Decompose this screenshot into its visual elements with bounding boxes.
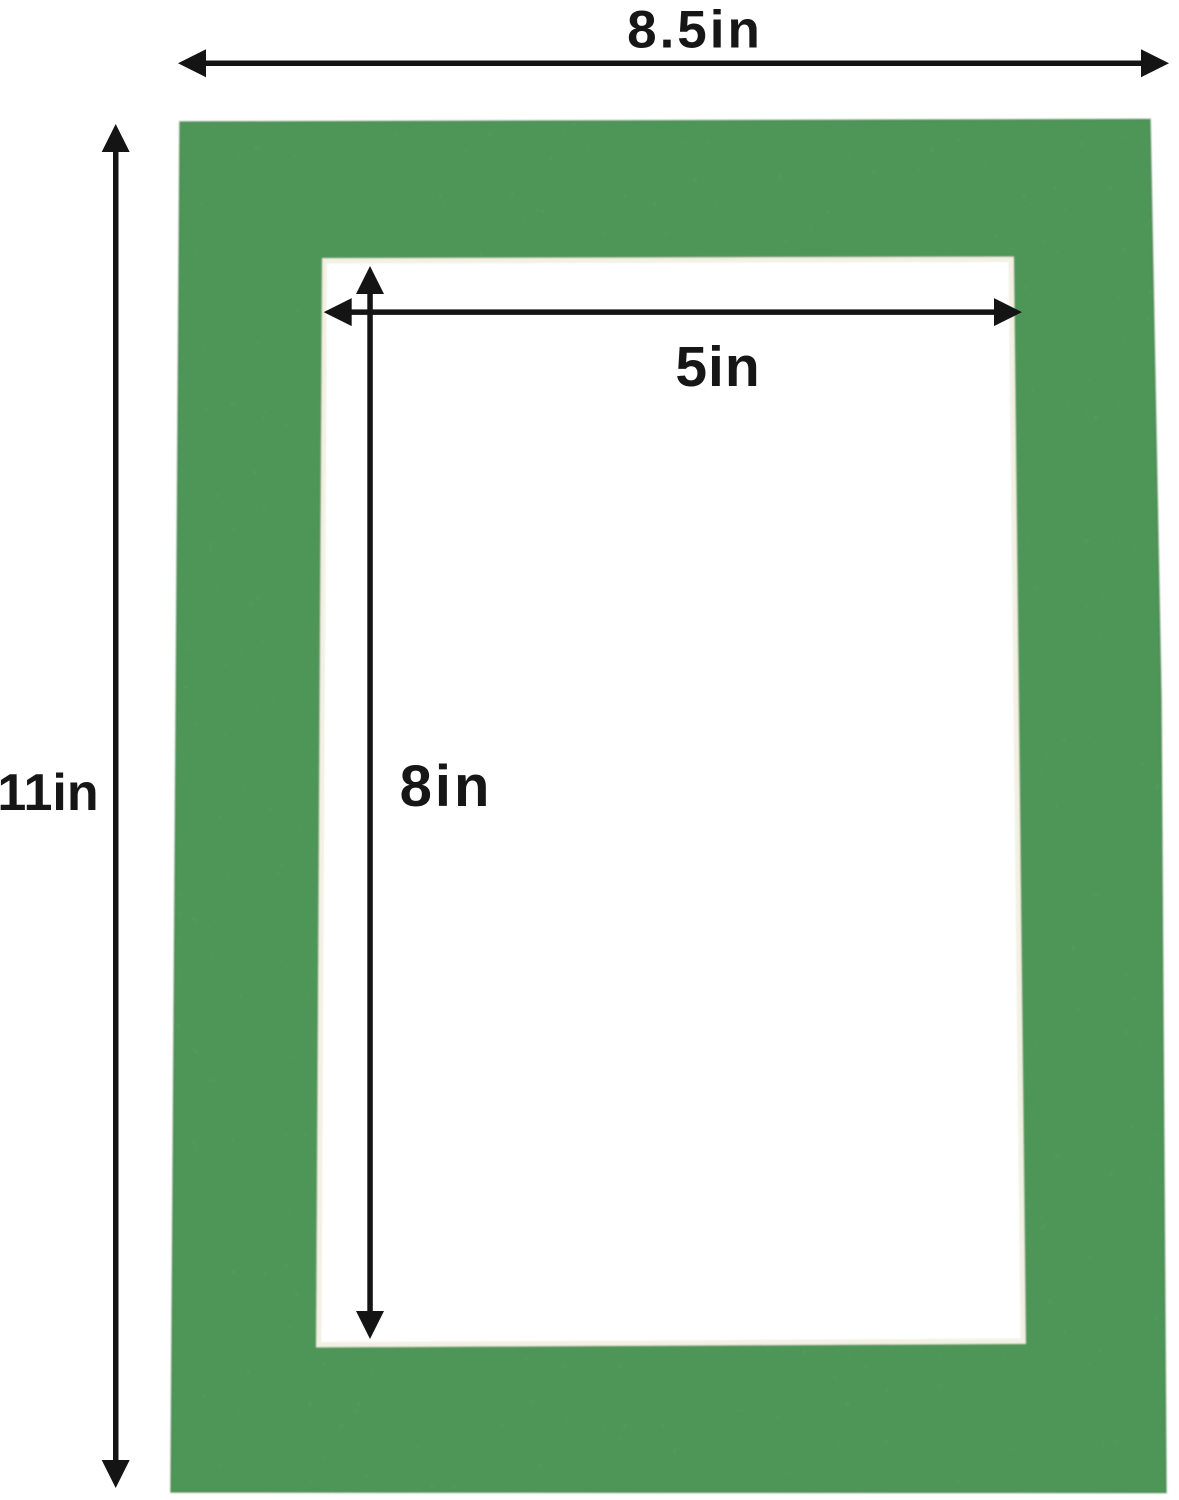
svg-text:8.5in: 8.5in bbox=[627, 1, 763, 60]
svg-text:11in: 11in bbox=[0, 764, 99, 822]
svg-text:5in: 5in bbox=[675, 335, 760, 399]
svg-text:8in: 8in bbox=[400, 754, 493, 819]
